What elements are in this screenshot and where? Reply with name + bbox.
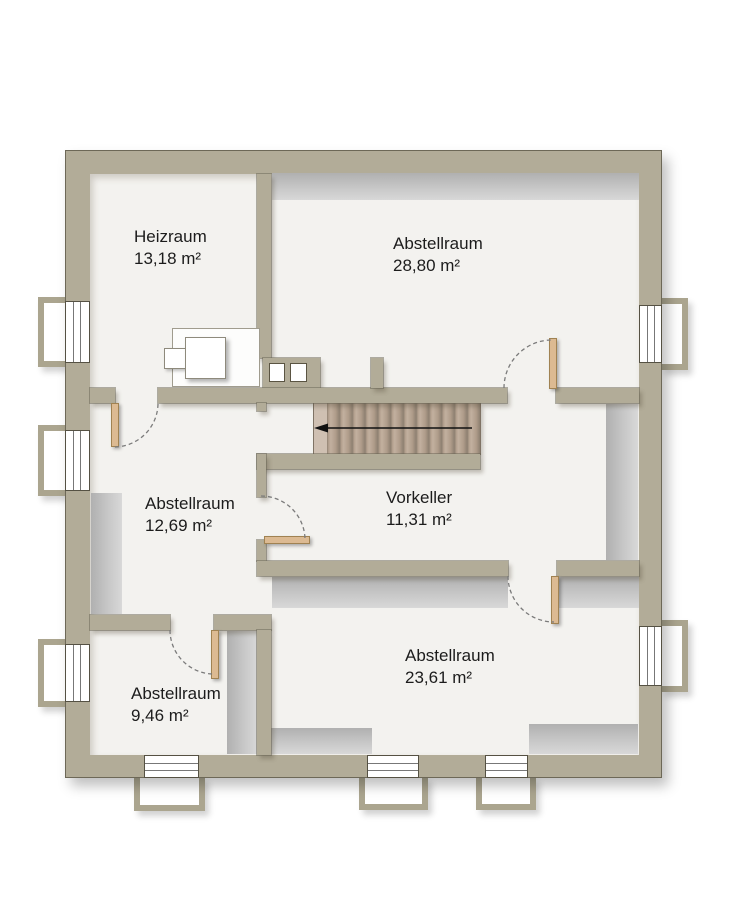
- room-area: 13,18 m²: [134, 248, 207, 270]
- room-name: Vorkeller: [386, 487, 452, 509]
- door-leaf: [264, 536, 310, 544]
- floor-shading-band: [272, 173, 639, 200]
- door-leaf: [549, 338, 557, 389]
- window-well: [476, 777, 536, 810]
- floor-shading-band: [272, 577, 508, 608]
- room-area: 9,46 m²: [131, 705, 221, 727]
- window: [639, 305, 662, 363]
- wall: [371, 358, 383, 388]
- wall: [214, 615, 271, 630]
- door-leaf: [111, 403, 119, 447]
- wall: [556, 388, 639, 403]
- room-area: 11,31 m²: [386, 509, 452, 531]
- room-area: 23,61 m²: [405, 667, 495, 689]
- window-well: [38, 639, 66, 707]
- room-label-vorkeller: Vorkeller 11,31 m²: [386, 487, 452, 531]
- window: [367, 755, 419, 778]
- floor-shading-band: [558, 577, 639, 608]
- room-name: Abstellraum: [131, 683, 221, 705]
- window-well: [359, 777, 428, 810]
- window-well: [661, 298, 688, 370]
- window-well: [134, 777, 205, 811]
- window-well: [38, 297, 66, 367]
- floor-plan: Heizraum 13,18 m² Abstellraum 28,80 m² A…: [0, 0, 729, 900]
- window: [485, 755, 528, 778]
- floor-shading-band: [606, 404, 638, 560]
- window: [65, 430, 90, 491]
- room-name: Heizraum: [134, 226, 207, 248]
- floor-shading-band: [529, 724, 638, 754]
- window: [144, 755, 199, 778]
- door-leaf: [551, 576, 559, 624]
- floor-shading-band: [227, 631, 257, 754]
- wall: [257, 403, 266, 411]
- floor-shading-band: [91, 493, 122, 614]
- wall: [90, 388, 115, 403]
- staircase: [314, 403, 480, 454]
- chimney-flue: [269, 363, 285, 382]
- room-name: Abstellraum: [405, 645, 495, 667]
- wall: [257, 630, 271, 755]
- stair-landing-tread: [314, 403, 327, 454]
- window: [65, 301, 90, 363]
- room-name: Abstellraum: [393, 233, 483, 255]
- floor-shading-band: [271, 728, 372, 754]
- boiler-pipe-stub: [164, 348, 186, 369]
- wall: [158, 388, 507, 403]
- wall: [557, 561, 639, 576]
- room-label-abstellraum-4: Abstellraum 9,46 m²: [131, 683, 221, 727]
- window: [639, 626, 662, 686]
- room-name: Abstellraum: [145, 493, 235, 515]
- wall: [90, 615, 170, 630]
- room-label-abstellraum-1: Abstellraum 28,80 m²: [393, 233, 483, 277]
- wall: [257, 561, 508, 576]
- room-label-abstellraum-3: Abstellraum 23,61 m²: [405, 645, 495, 689]
- room-label-abstellraum-2: Abstellraum 12,69 m²: [145, 493, 235, 537]
- window-well: [38, 425, 66, 496]
- window: [65, 644, 90, 702]
- room-area: 28,80 m²: [393, 255, 483, 277]
- window-well: [661, 620, 688, 692]
- wall: [257, 454, 480, 469]
- wall: [257, 454, 266, 497]
- door-leaf: [211, 630, 219, 679]
- room-label-heizraum: Heizraum 13,18 m²: [134, 226, 207, 270]
- chimney-flue: [290, 363, 307, 382]
- room-area: 12,69 m²: [145, 515, 235, 537]
- boiler-symbol: [185, 337, 226, 379]
